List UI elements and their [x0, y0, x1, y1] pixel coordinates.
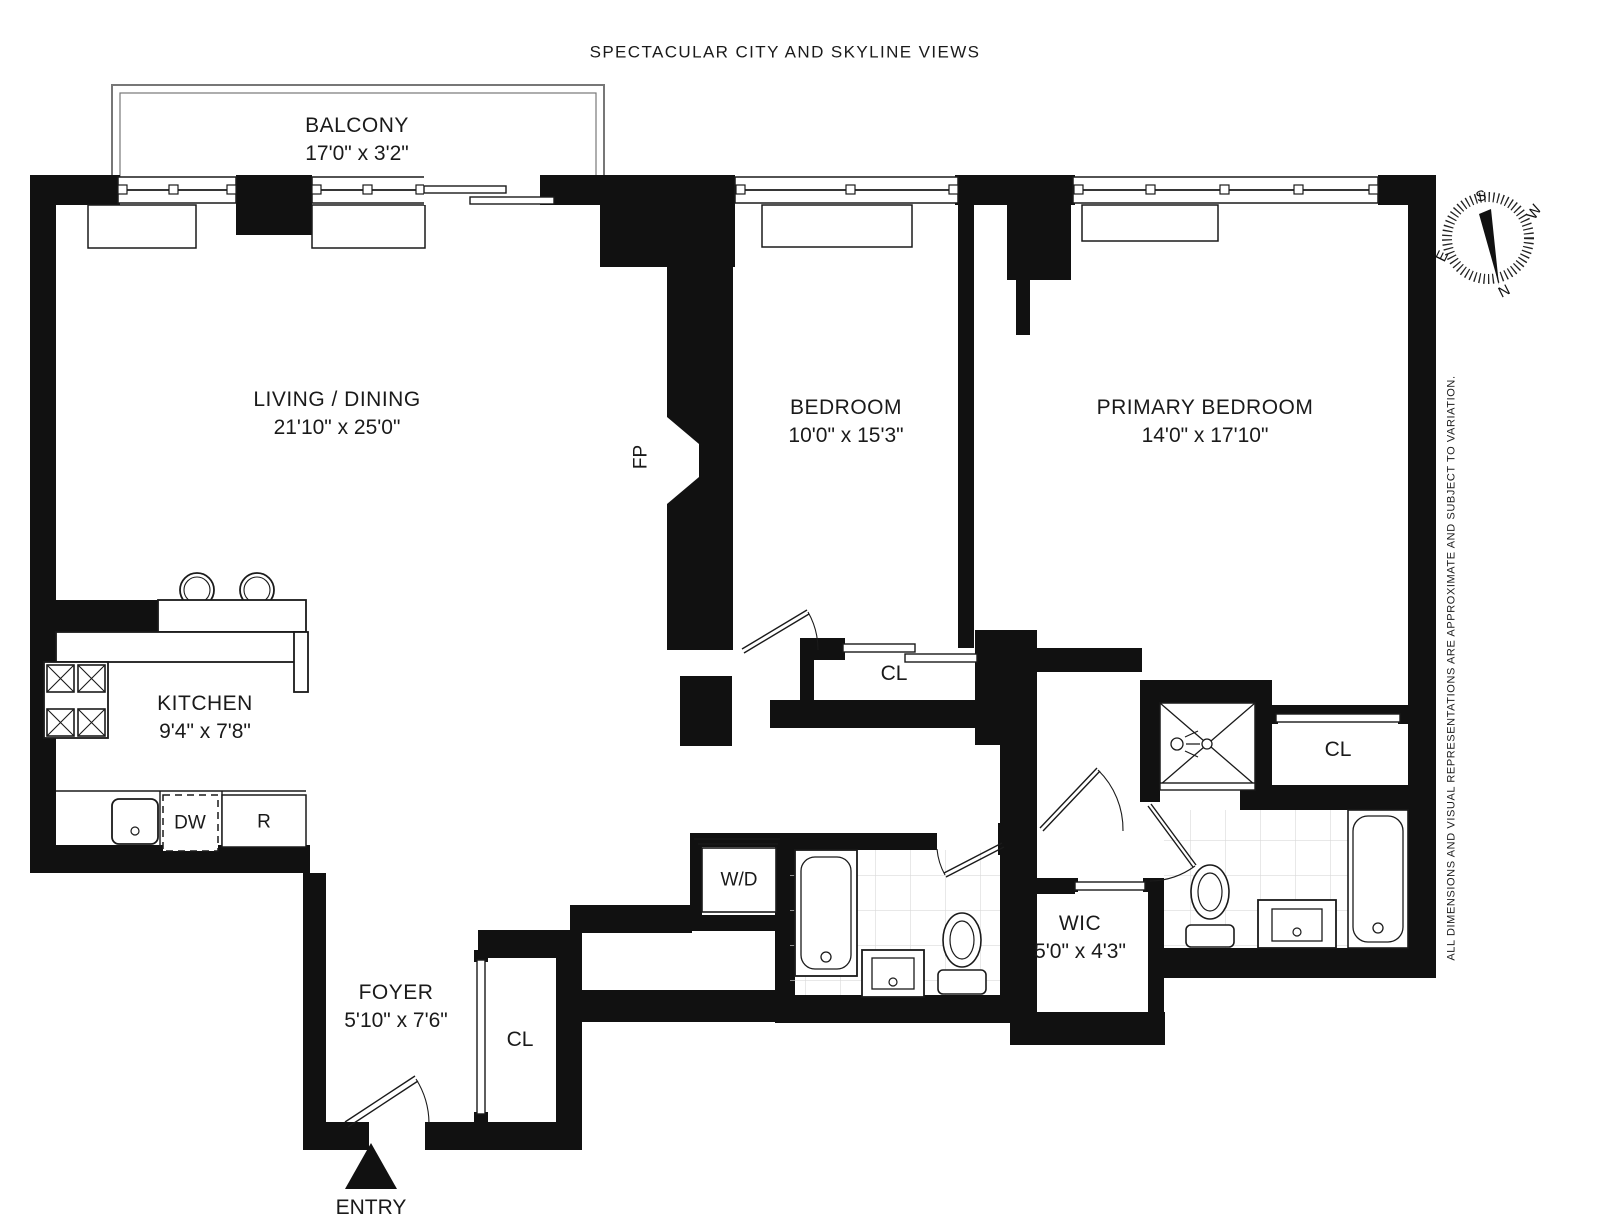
- dishwasher-label: DW: [174, 810, 206, 835]
- kitchen-sink-icon: [112, 799, 158, 844]
- room-dims: 5'10" x 7'6": [344, 1007, 448, 1035]
- room-dims: 17'0" x 3'2": [305, 140, 409, 168]
- sink-icon: [1258, 900, 1336, 948]
- plan-title: SPECTACULAR CITY AND SKYLINE VIEWS: [590, 42, 981, 65]
- bedroom-closet-label: CL: [881, 660, 908, 688]
- primary-bedroom-door: [1040, 768, 1123, 831]
- washer-dryer-label: W/D: [721, 867, 758, 892]
- shower-door-track: [1160, 783, 1255, 790]
- balcony-sliding-door: [424, 175, 554, 205]
- toilet-icon: [1186, 865, 1234, 947]
- compass-rose: S W E N: [1433, 187, 1546, 302]
- primary-closet-label: CL: [1325, 736, 1352, 764]
- room-dims: 10'0" x 15'3": [788, 422, 903, 450]
- bathtub-icon: [1348, 810, 1408, 948]
- living-window-b: [312, 177, 425, 248]
- refrigerator-label: R: [257, 809, 271, 834]
- compass-s: S: [1474, 187, 1489, 206]
- wic-label: WIC 5'0" x 4'3": [1034, 910, 1126, 966]
- balcony-label: BALCONY 17'0" x 3'2": [305, 112, 409, 168]
- door-swing-arc: [1098, 770, 1123, 831]
- shower-head-icon: [1171, 738, 1183, 750]
- compass-n: N: [1496, 281, 1513, 301]
- wic-doors: [1075, 882, 1145, 890]
- room-name: BALCONY: [305, 112, 409, 140]
- sliding-door-track: [1276, 714, 1400, 722]
- door-leaf: [345, 1076, 418, 1127]
- foyer-closet: [477, 960, 485, 1114]
- room-name: FOYER: [344, 979, 448, 1007]
- window-sill: [88, 205, 196, 248]
- stove-icon: [44, 662, 108, 738]
- window-sill: [762, 205, 912, 247]
- sliding-door-track: [1075, 882, 1145, 890]
- floor-plan: S W E N SPECTACULAR CITY AND SKYLINE VIE…: [0, 0, 1600, 1231]
- window-sill: [1082, 205, 1218, 241]
- room-dims: 5'0" x 4'3": [1034, 938, 1126, 966]
- room-dims: 14'0" x 17'10": [1097, 422, 1314, 450]
- entry-door: [345, 1076, 429, 1127]
- primary-closet-doors: [1276, 714, 1400, 722]
- kitchen-label: KITCHEN 9'4" x 7'8": [157, 690, 253, 746]
- counter-wall: [56, 600, 158, 632]
- room-name: WIC: [1034, 910, 1126, 938]
- bedroom-window: [735, 177, 958, 247]
- living-room-label: LIVING / DINING 21'10" x 25'0": [253, 386, 420, 442]
- room-name: PRIMARY BEDROOM: [1097, 394, 1314, 422]
- door-leaf: [1040, 768, 1100, 831]
- foyer-label: FOYER 5'10" x 7'6": [344, 979, 448, 1035]
- primary-window: [1073, 177, 1378, 241]
- foyer-closet-label: CL: [507, 1026, 534, 1054]
- entry-label: ENTRY: [336, 1194, 407, 1222]
- sliding-door-track: [905, 654, 977, 662]
- room-name: BEDROOM: [788, 394, 903, 422]
- bedroom-closet-doors: [843, 644, 977, 662]
- room-name: KITCHEN: [157, 690, 253, 718]
- room-dims: 21'10" x 25'0": [253, 414, 420, 442]
- bedroom-label: BEDROOM 10'0" x 15'3": [788, 394, 903, 450]
- counter: [56, 632, 306, 662]
- door-leaf: [742, 610, 809, 653]
- primary-bedroom-label: PRIMARY BEDROOM 14'0" x 17'10": [1097, 394, 1314, 450]
- floor-plan-drawing: S W E N: [0, 0, 1600, 1231]
- shower-icon: [1160, 703, 1255, 790]
- bathtub-icon: [795, 850, 857, 976]
- window-sill: [312, 205, 425, 248]
- breakfast-bar: [158, 600, 306, 632]
- room-name: LIVING / DINING: [253, 386, 420, 414]
- fireplace-label: FP: [628, 445, 653, 469]
- sliding-door-track: [477, 960, 485, 1114]
- door-swing-arc: [416, 1079, 429, 1123]
- room-dims: 9'4" x 7'8": [157, 718, 253, 746]
- disclaimer-text: ALL DIMENSIONS AND VISUAL REPRESENTATION…: [1445, 375, 1460, 960]
- sink-icon: [862, 950, 924, 997]
- sliding-door-track: [843, 644, 915, 652]
- counter-return: [294, 632, 308, 692]
